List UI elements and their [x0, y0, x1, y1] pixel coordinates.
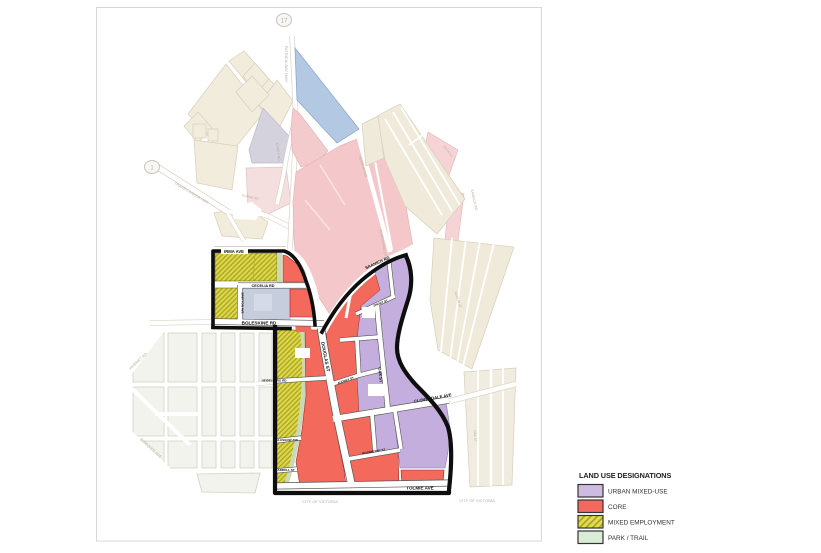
svg-text:CITY OF VICTORIA: CITY OF VICTORIA: [459, 498, 495, 503]
svg-text:TOLMIE AVE: TOLMIE AVE: [406, 486, 433, 491]
svg-text:CECELIA RD: CECELIA RD: [251, 284, 274, 288]
svg-text:GLASGOW AVE: GLASGOW AVE: [276, 438, 299, 442]
svg-text:URBAN MIXED-USE: URBAN MIXED-USE: [608, 489, 668, 496]
svg-text:OAK ST: OAK ST: [473, 430, 478, 442]
svg-text:PARK / TRAIL: PARK / TRAIL: [608, 535, 649, 542]
svg-text:PATRICIA BAY HWY: PATRICIA BAY HWY: [284, 46, 289, 83]
svg-text:LAND USE DESIGNATIONS: LAND USE DESIGNATIONS: [579, 471, 671, 480]
svg-text:MIXED EMPLOYMENT: MIXED EMPLOYMENT: [608, 520, 675, 527]
svg-text:CARROLL ST: CARROLL ST: [275, 468, 294, 472]
svg-text:HEIDELBERG RD: HEIDELBERG RD: [262, 378, 288, 382]
svg-text:BOLESKINE RD: BOLESKINE RD: [242, 321, 277, 326]
svg-text:CITY OF VICTORIA: CITY OF VICTORIA: [302, 499, 338, 504]
svg-text:IRMA AVE: IRMA AVE: [224, 249, 244, 254]
svg-text:CORE: CORE: [608, 504, 626, 511]
svg-text:BRETTON AVE: BRETTON AVE: [241, 292, 245, 313]
svg-text:17: 17: [281, 19, 288, 25]
